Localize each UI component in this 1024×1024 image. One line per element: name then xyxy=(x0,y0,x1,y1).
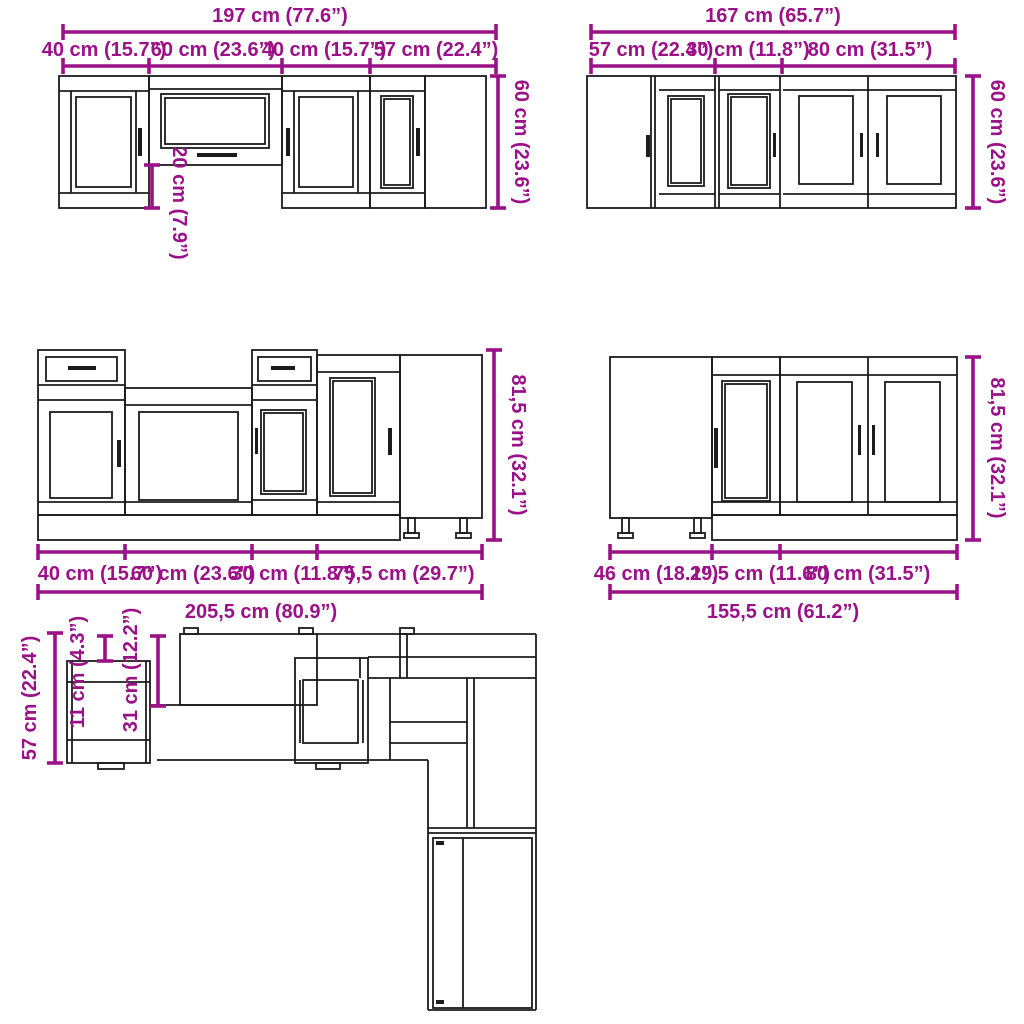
drawing-line xyxy=(404,533,419,538)
adjustable-foot xyxy=(622,518,629,533)
drawing-line xyxy=(400,355,482,518)
door-handle xyxy=(646,135,650,157)
dim-label-segment: 40 cm (15.7”) xyxy=(42,39,167,61)
drawing-line xyxy=(799,96,853,184)
drawing-line xyxy=(425,76,486,208)
adjustable-foot xyxy=(460,518,467,533)
dim-label-segment: 80 cm (31.5”) xyxy=(806,563,931,585)
dim-label-height: 60 cm (23.6”) xyxy=(986,80,1008,205)
drawing-line xyxy=(671,99,701,183)
dim-label-segment: 75,5 cm (29.7”) xyxy=(333,563,474,585)
drawing-line xyxy=(436,1000,444,1004)
drawing-line xyxy=(797,382,852,502)
drawing-line xyxy=(264,413,303,491)
drawing-line xyxy=(261,410,306,494)
door-handle xyxy=(416,128,420,156)
drawing-line xyxy=(161,94,269,148)
dim-label-segment: 60 cm (23.6”) xyxy=(151,39,276,61)
door-handle xyxy=(872,425,875,455)
dim-label-segment: 57 cm (22.4”) xyxy=(374,39,499,61)
drawing-line xyxy=(165,98,265,144)
door-handle xyxy=(860,133,863,157)
drawing-line xyxy=(885,382,940,502)
dim-label-drop: 20 cm (7.9”) xyxy=(168,146,190,259)
drawing-line xyxy=(180,634,317,705)
drawing-line xyxy=(333,381,372,493)
drawing-line xyxy=(303,680,358,743)
drawing-line xyxy=(316,763,340,769)
drawing-line xyxy=(690,533,705,538)
door-handle xyxy=(773,133,776,157)
dim-label-height: 81,5 cm (32.1”) xyxy=(507,374,529,515)
drawing-line xyxy=(184,628,198,634)
drawing-line xyxy=(731,97,767,185)
drawing-line xyxy=(125,388,252,515)
door-handle xyxy=(876,133,879,157)
cabinet-dimension-diagram: { "page": { "background_color": "#ffffff… xyxy=(0,0,1024,1024)
dim-label-total-width: 205,5 cm (80.9”) xyxy=(185,601,337,623)
base-run-left-drawing xyxy=(38,350,482,540)
drawing-line xyxy=(728,94,770,188)
drawing-line xyxy=(610,357,712,518)
adjustable-foot xyxy=(408,518,415,533)
drawer-handle xyxy=(68,366,96,370)
dim-label-depth-small: 11 cm (4.3”) xyxy=(67,616,89,728)
drawing-line xyxy=(139,412,238,500)
drawing-line xyxy=(436,841,444,845)
adjustable-foot xyxy=(694,518,701,533)
drawing-line xyxy=(381,96,413,188)
drawing-line xyxy=(50,412,112,498)
door-handle xyxy=(117,440,121,467)
dim-label-segment: 30 cm (11.8”) xyxy=(686,39,809,61)
dim-label-total-width: 167 cm (65.7”) xyxy=(705,5,841,27)
drawing-line xyxy=(299,97,353,187)
dim-label-depth-total: 57 cm (22.4”) xyxy=(19,636,41,761)
base-run-right-drawing xyxy=(610,357,957,540)
door-handle xyxy=(714,428,718,468)
dim-label-total-width: 155,5 cm (61.2”) xyxy=(707,601,859,623)
dim-label-depth-medium: 31 cm (12.2”) xyxy=(120,608,142,733)
door-handle xyxy=(197,153,237,157)
door-handle xyxy=(138,128,142,156)
base-run-right-dimensions: 81,5 cm (32.1”) 46 cm (18.1”) 29,5 cm (1… xyxy=(594,357,1008,623)
dim-label-segment: 80 cm (31.5”) xyxy=(808,39,933,61)
dim-label-height: 81,5 cm (32.1”) xyxy=(986,377,1008,518)
drawing-line xyxy=(384,99,410,185)
drawing-line xyxy=(295,658,368,763)
drawing-line xyxy=(98,763,124,769)
drawing-line xyxy=(76,97,131,187)
diagram-canvas: 197 cm (77.6”) 40 cm (15.7”) 60 cm (23.6… xyxy=(0,0,1024,1024)
dim-label-segment: 40 cm (15.7”) xyxy=(262,39,387,61)
drawing-line xyxy=(887,96,941,184)
dim-label-height: 60 cm (23.6”) xyxy=(510,80,532,205)
dim-label-total-width: 197 cm (77.6”) xyxy=(212,5,348,27)
drawing-line xyxy=(722,381,770,501)
drawing-line xyxy=(456,533,471,538)
door-handle xyxy=(255,428,258,454)
drawing-line xyxy=(282,76,370,208)
door-handle xyxy=(286,128,290,156)
drawer-handle xyxy=(271,366,295,370)
door-handle xyxy=(388,428,392,455)
plinth xyxy=(712,515,957,540)
drawing-line xyxy=(330,378,375,496)
plinth xyxy=(38,515,400,540)
wall-run-right-drawing xyxy=(587,76,956,208)
drawing-line xyxy=(725,384,767,498)
door-handle xyxy=(858,425,861,455)
wall-run-left-drawing xyxy=(59,76,486,208)
drawing-line xyxy=(433,838,532,1008)
drawing-line xyxy=(618,533,633,538)
drawing-line xyxy=(668,96,704,186)
drawing-line xyxy=(299,628,313,634)
